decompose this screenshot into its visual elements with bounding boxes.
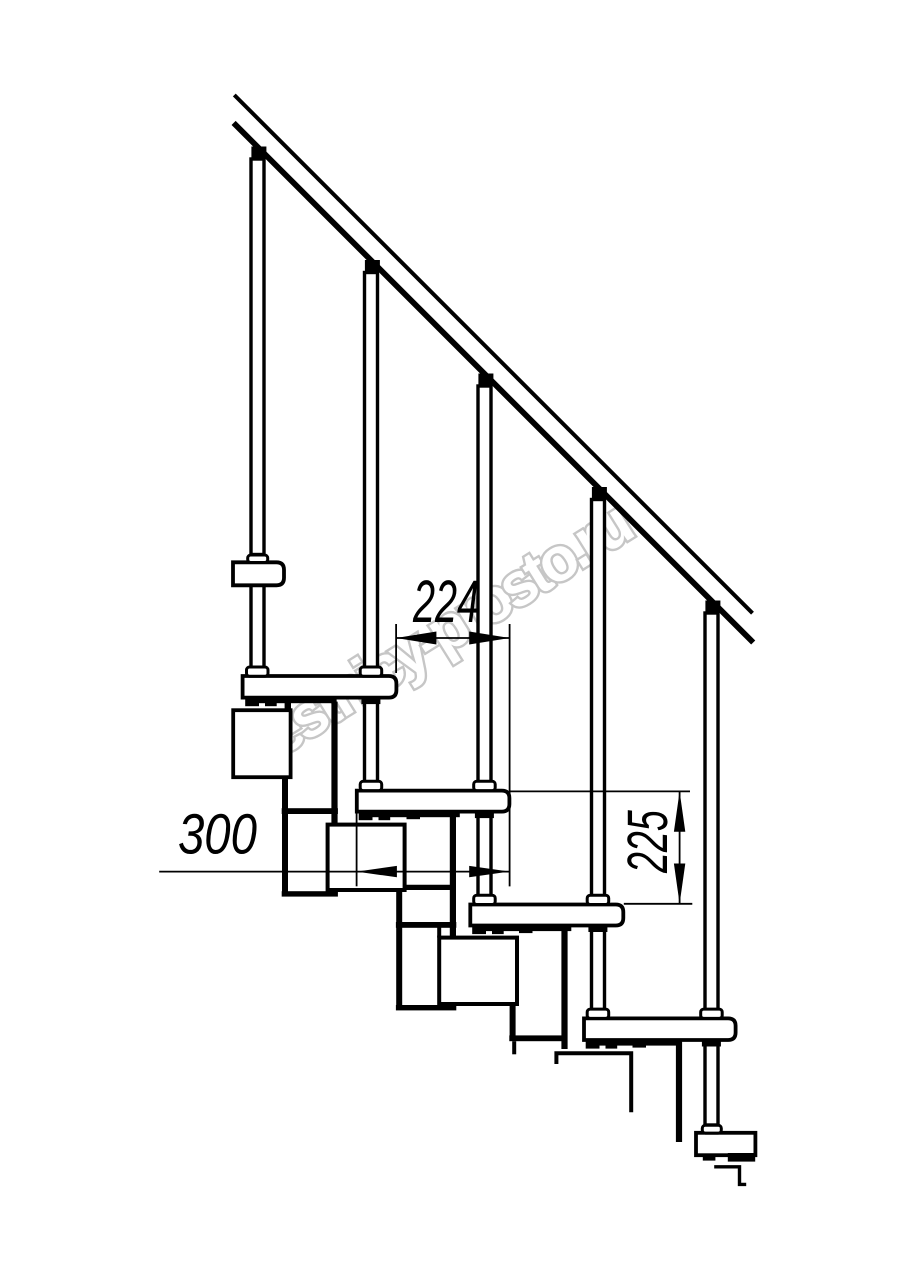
svg-text:300: 300: [178, 803, 257, 867]
svg-text:224: 224: [412, 568, 479, 635]
svg-text:225: 225: [616, 810, 680, 874]
